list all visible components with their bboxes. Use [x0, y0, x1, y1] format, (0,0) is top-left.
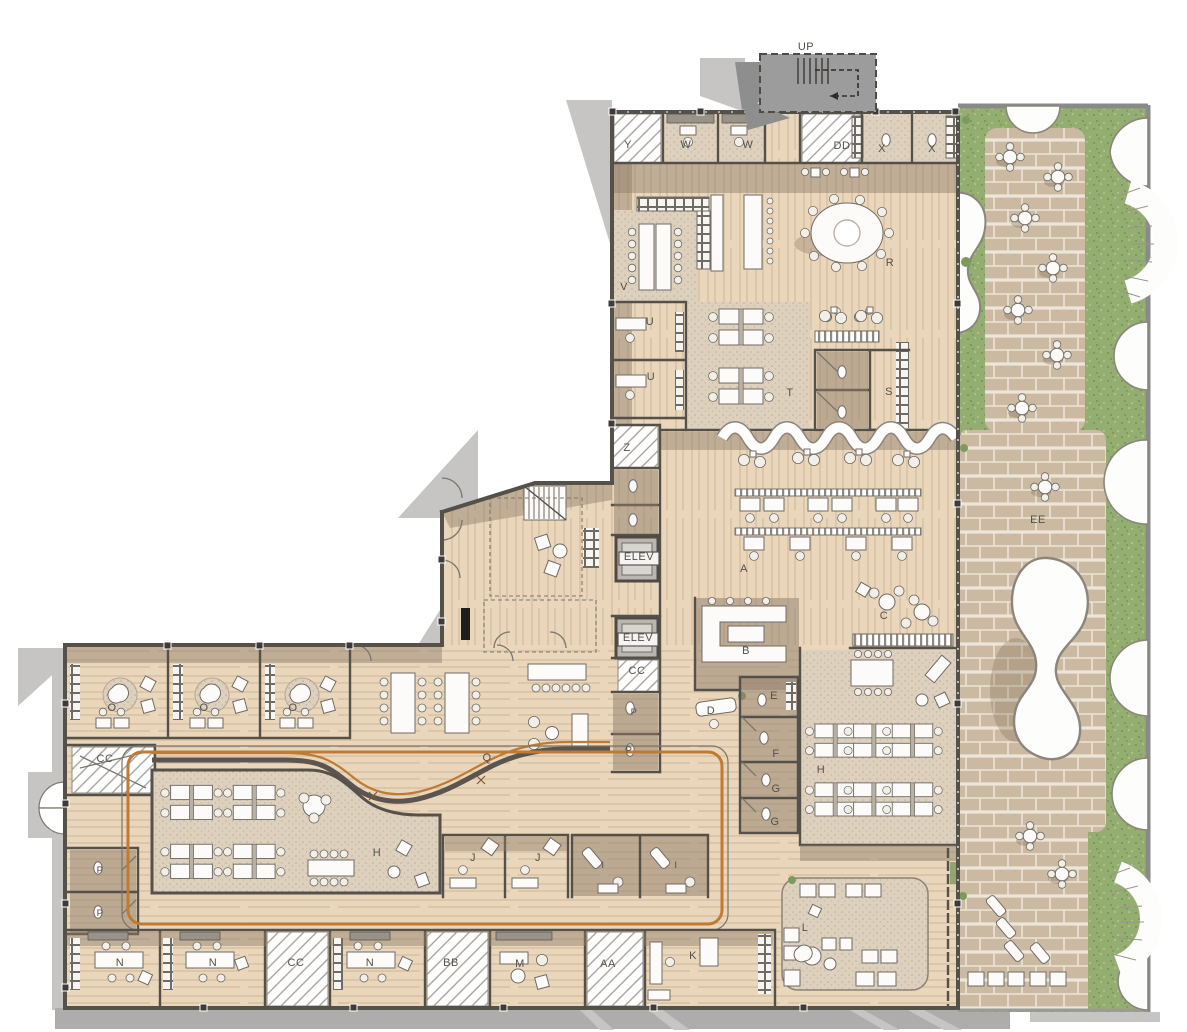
room-label-i-2: I — [674, 860, 677, 871]
room-label-x-2: X — [928, 143, 936, 155]
room-label-o-3: O — [288, 702, 297, 714]
room-label-elev-1: ELEV — [624, 551, 654, 563]
room-label-cc-1: CC — [629, 665, 646, 677]
room-label-y: Y — [624, 139, 632, 151]
efg-stack — [740, 677, 798, 833]
room-label-o-2: O — [199, 702, 208, 714]
room-z-hatch — [613, 425, 658, 468]
balustrade — [853, 634, 953, 646]
room-label-o-1: O — [107, 702, 116, 714]
room-label-aa: AA — [600, 958, 616, 970]
room-label-v: V — [620, 281, 628, 293]
room-label-u-2: U — [647, 371, 655, 383]
room-label-z: Z — [623, 442, 630, 454]
lobby-stairs — [524, 486, 566, 520]
room-label-j-1: J — [470, 852, 476, 864]
room-label-bb: BB — [443, 957, 459, 969]
room-dd-hatch — [802, 114, 860, 163]
room-label-n-3: N — [366, 957, 374, 969]
room-label-elev-2: ELEV — [623, 632, 653, 644]
room-label-t: T — [786, 387, 793, 399]
room-label-w-1: W — [681, 139, 692, 151]
i-rooms — [572, 835, 708, 897]
room-label-q: Q — [482, 752, 491, 764]
room-label-e: E — [770, 690, 778, 702]
room-label-s: S — [885, 386, 893, 398]
room-label-l: L — [802, 922, 809, 934]
room-label-p-2: P — [626, 745, 633, 756]
room-label-g-2: G — [770, 816, 779, 828]
room-label-h-2: H — [373, 847, 381, 859]
room-label-r: R — [886, 257, 894, 269]
lobby-kiosk — [461, 608, 470, 640]
floor-plan-page: UPYWWDDXXRVUUTSZELEVAELEVCCBCDEFGGHPPOOO… — [0, 0, 1187, 1032]
room-label-p-4: P — [97, 908, 104, 919]
room-label-c: C — [880, 610, 888, 622]
lobby-shelf — [583, 528, 599, 568]
room-label-ee: EE — [1030, 514, 1046, 526]
room-label-k: K — [689, 950, 697, 962]
room-label-n-2: N — [209, 957, 217, 969]
room-bb-hatch — [427, 932, 488, 1006]
room-label-g-1: G — [771, 783, 780, 795]
room-label-n-1: N — [116, 957, 124, 969]
h-right-office — [800, 634, 958, 861]
room-label-cc-2: CC — [97, 753, 114, 765]
room-label-m: M — [515, 958, 525, 970]
room-label-x-1: X — [878, 143, 886, 155]
room-label-d: D — [707, 705, 715, 717]
room-label-dd: DD — [834, 140, 851, 152]
room-label-p-3: P — [97, 865, 104, 876]
room-label-b: B — [742, 645, 750, 657]
room-label-a: A — [740, 563, 748, 575]
room-label-w-2: W — [743, 139, 754, 151]
room-label-u-1: U — [646, 316, 654, 328]
room-label-f: F — [772, 748, 779, 760]
floor-plan-drawing: UPYWWDDXXRVUUTSZELEVAELEVCCBCDEFGGHPPOOO… — [0, 0, 1187, 1032]
room-label-j-2: J — [535, 852, 541, 864]
room-label-h-1: H — [817, 764, 825, 776]
room-label-i-1: I — [601, 860, 604, 871]
room-label-p-1: P — [631, 707, 638, 718]
room-cc3-hatch — [267, 932, 328, 1006]
room-y-hatch — [614, 114, 661, 163]
room-label-cc-3: CC — [288, 957, 305, 969]
room-label-up-stair: UP — [798, 41, 814, 53]
